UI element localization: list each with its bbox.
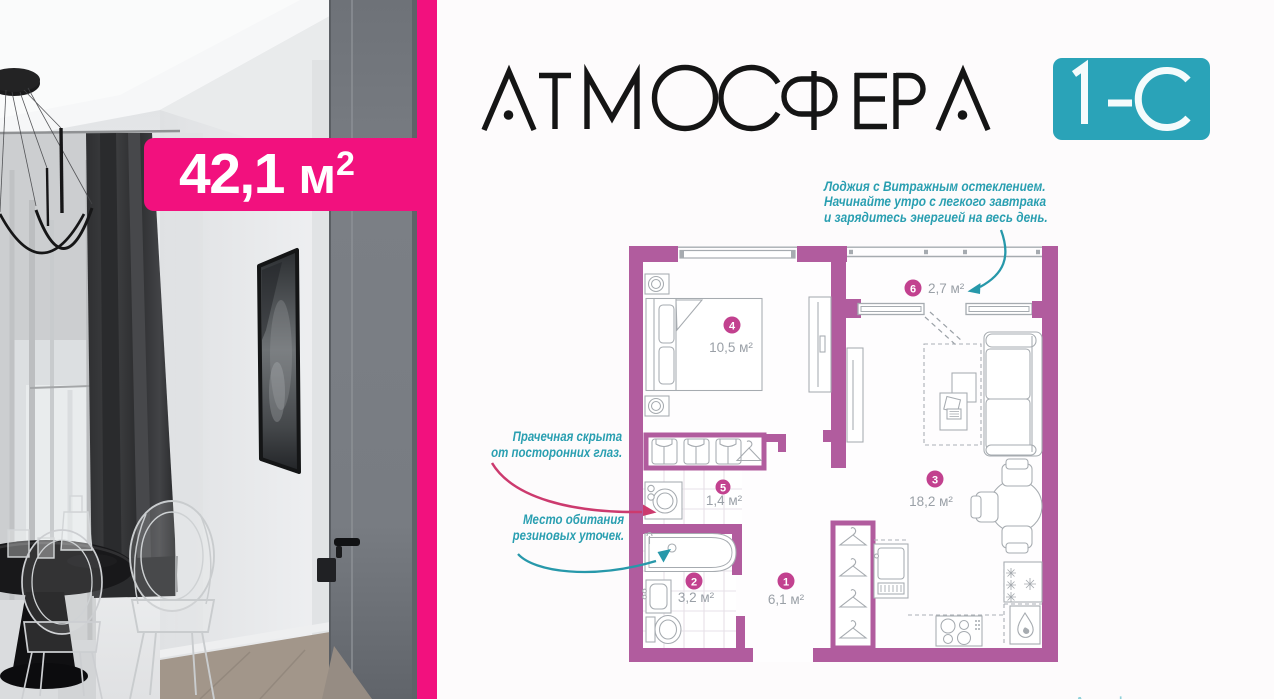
svg-text:6,1 м²: 6,1 м² bbox=[768, 592, 805, 607]
svg-text:2,7 м²: 2,7 м² bbox=[928, 281, 965, 296]
svg-text:1,4 м²: 1,4 м² bbox=[706, 493, 743, 508]
svg-text:3: 3 bbox=[932, 475, 938, 487]
svg-text:6: 6 bbox=[910, 284, 916, 296]
svg-text:3,2 м²: 3,2 м² bbox=[678, 590, 715, 605]
svg-text:4: 4 bbox=[729, 321, 736, 333]
svg-text:1: 1 bbox=[783, 577, 789, 589]
svg-text:18,2 м²: 18,2 м² bbox=[909, 494, 953, 509]
svg-text:10,5 м²: 10,5 м² bbox=[709, 340, 753, 355]
svg-text:2: 2 bbox=[691, 577, 697, 589]
